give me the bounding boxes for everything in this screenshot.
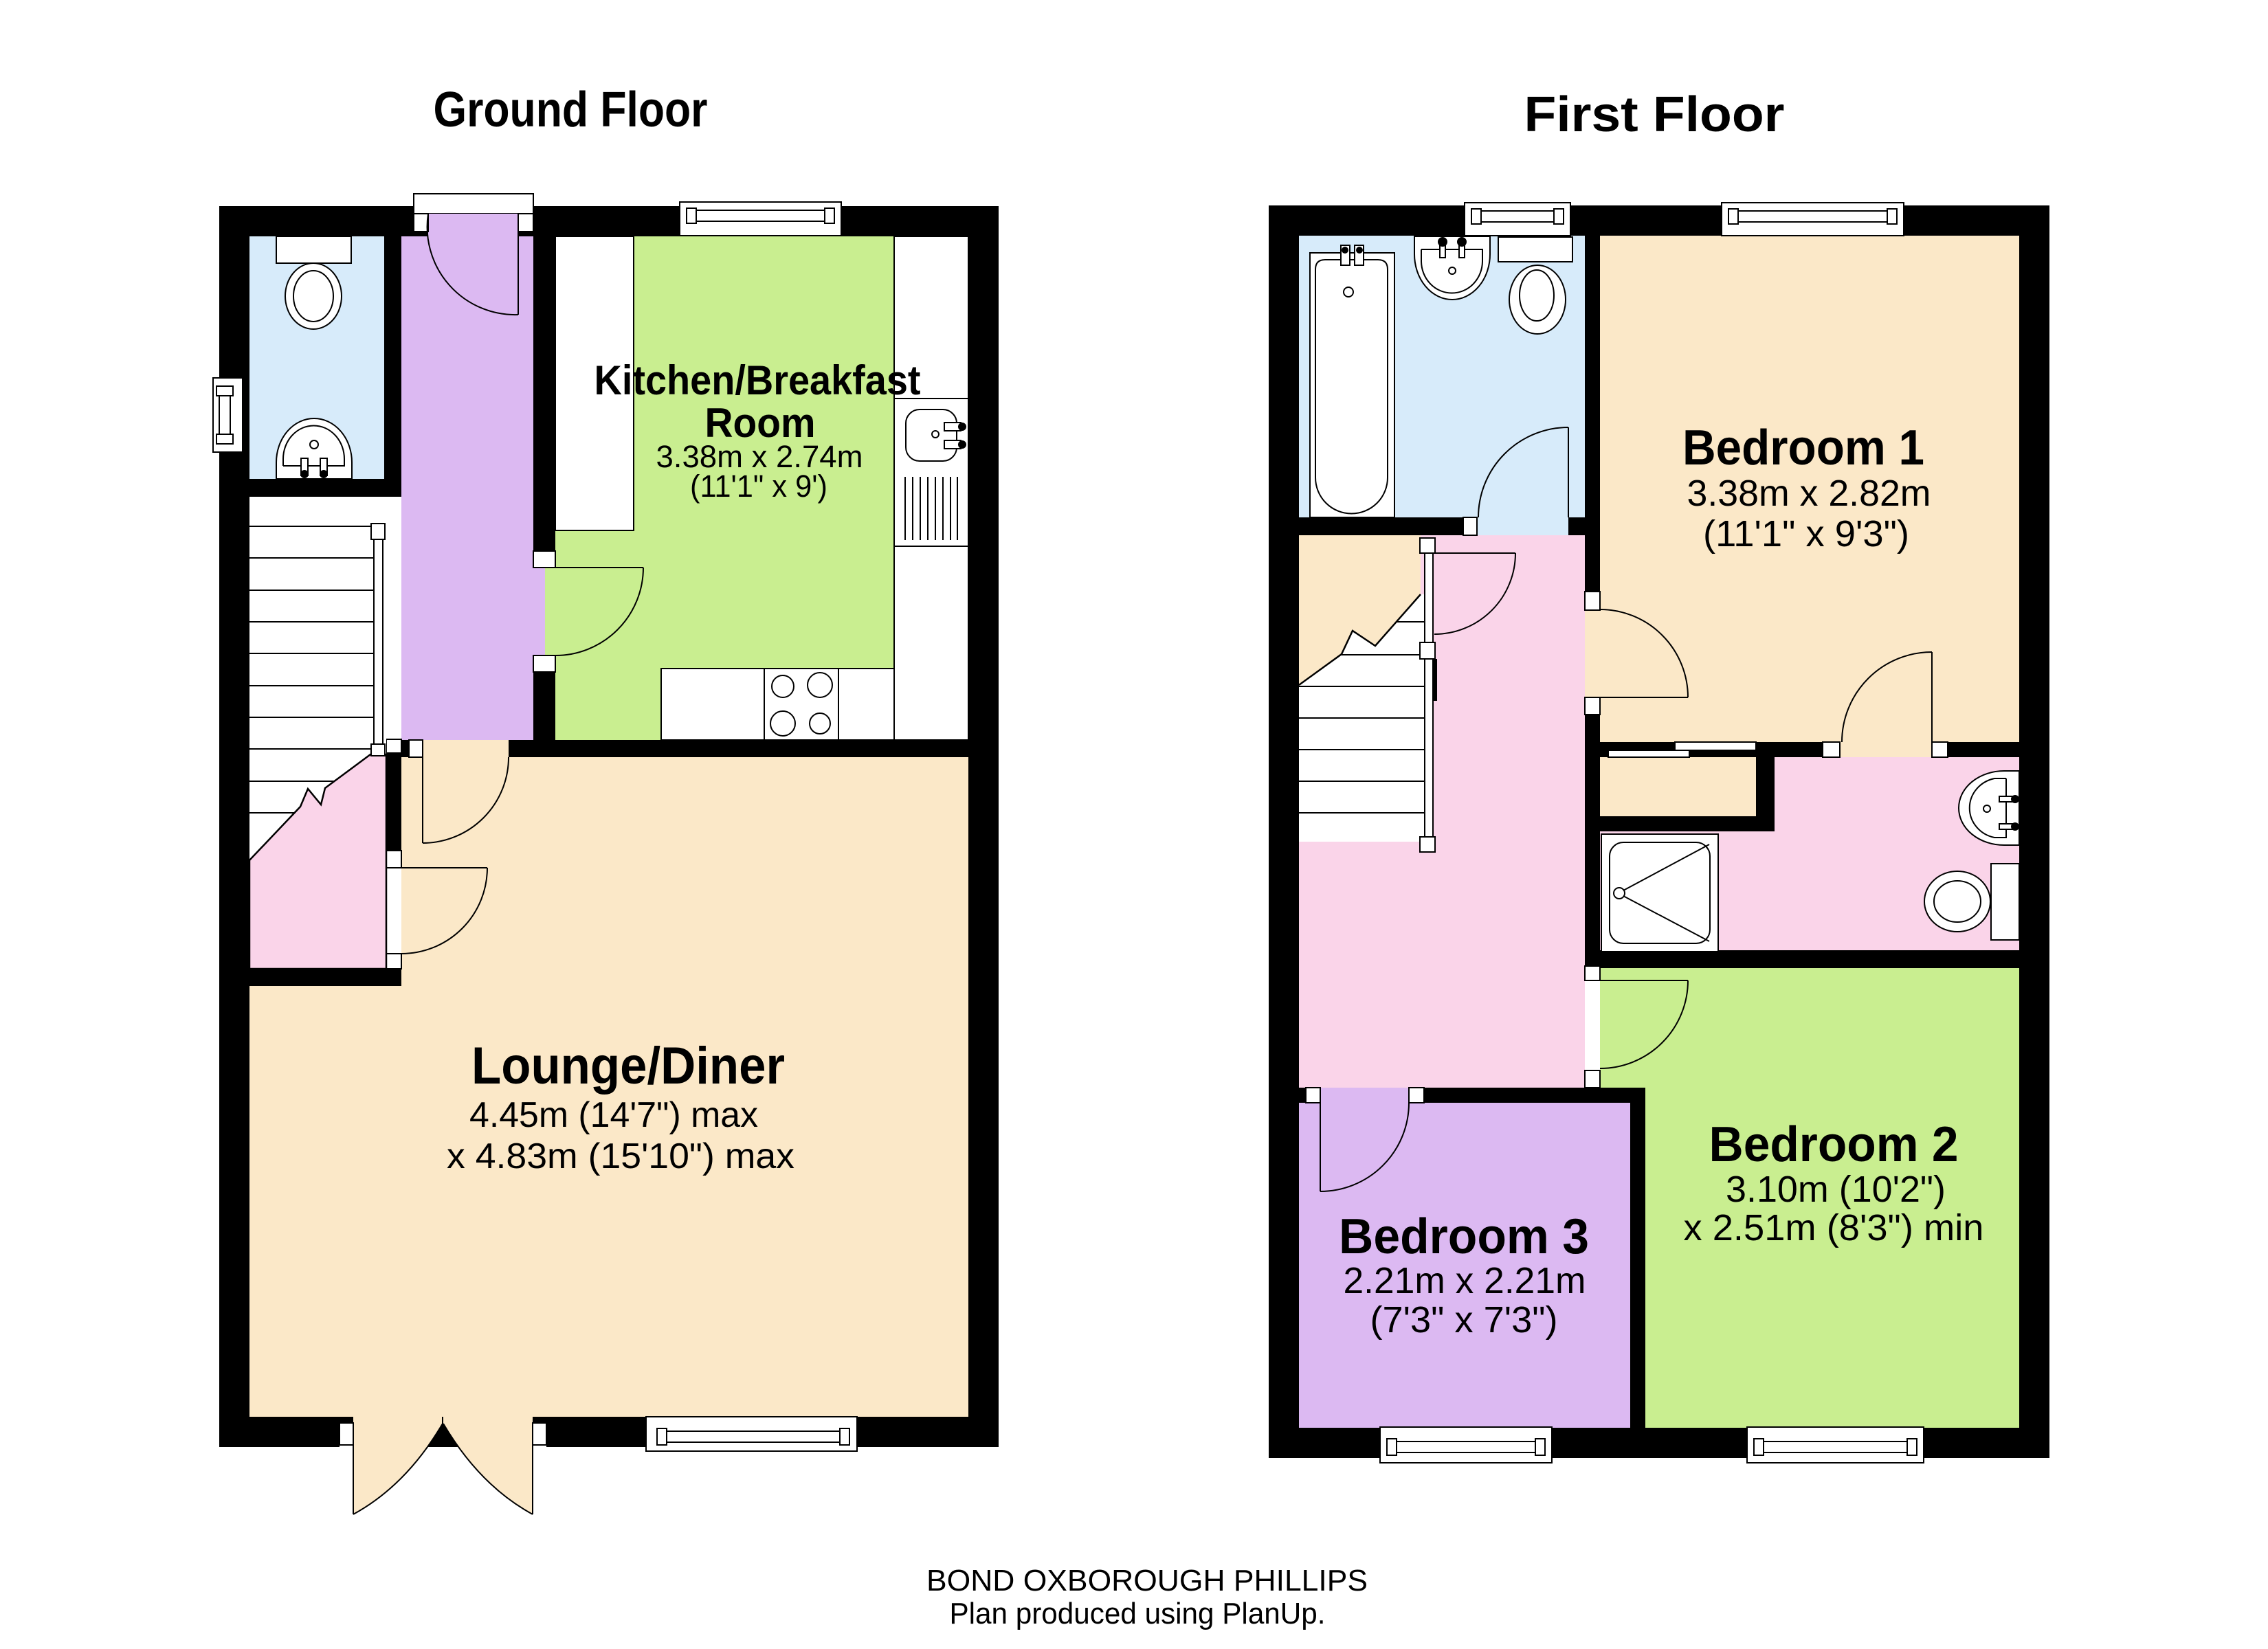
svg-text:(11'1" x 9'3"): (11'1" x 9'3"): [1703, 513, 1909, 554]
svg-text:First Floor: First Floor: [1524, 87, 1785, 142]
svg-text:BOND OXBOROUGH PHILLIPS: BOND OXBOROUGH PHILLIPS: [926, 1564, 1368, 1597]
svg-text:Bedroom 1: Bedroom 1: [1682, 420, 1924, 475]
svg-text:x 2.51m (8'3") min: x 2.51m (8'3") min: [1684, 1207, 1984, 1248]
svg-text:(11'1" x 9'): (11'1" x 9'): [690, 469, 827, 504]
svg-text:2.21m x 2.21m: 2.21m x 2.21m: [1344, 1260, 1586, 1301]
svg-text:Bedroom 2: Bedroom 2: [1709, 1117, 1959, 1172]
svg-text:Bedroom 3: Bedroom 3: [1339, 1209, 1589, 1264]
svg-text:3.38m x 2.82m: 3.38m x 2.82m: [1687, 473, 1931, 514]
svg-text:Kitchen/Breakfast: Kitchen/Breakfast: [594, 357, 921, 403]
svg-text:4.45m (14'7") max: 4.45m (14'7") max: [469, 1095, 758, 1135]
svg-text:Lounge/Diner: Lounge/Diner: [471, 1037, 785, 1095]
svg-text:(7'3" x 7'3"): (7'3" x 7'3"): [1370, 1299, 1558, 1340]
svg-text:Plan produced using PlanUp.: Plan produced using PlanUp.: [950, 1597, 1326, 1630]
svg-text:x 4.83m (15'10") max: x 4.83m (15'10") max: [447, 1136, 794, 1176]
svg-text:3.10m (10'2"): 3.10m (10'2"): [1726, 1169, 1946, 1210]
svg-text:Ground Floor: Ground Floor: [434, 82, 708, 137]
